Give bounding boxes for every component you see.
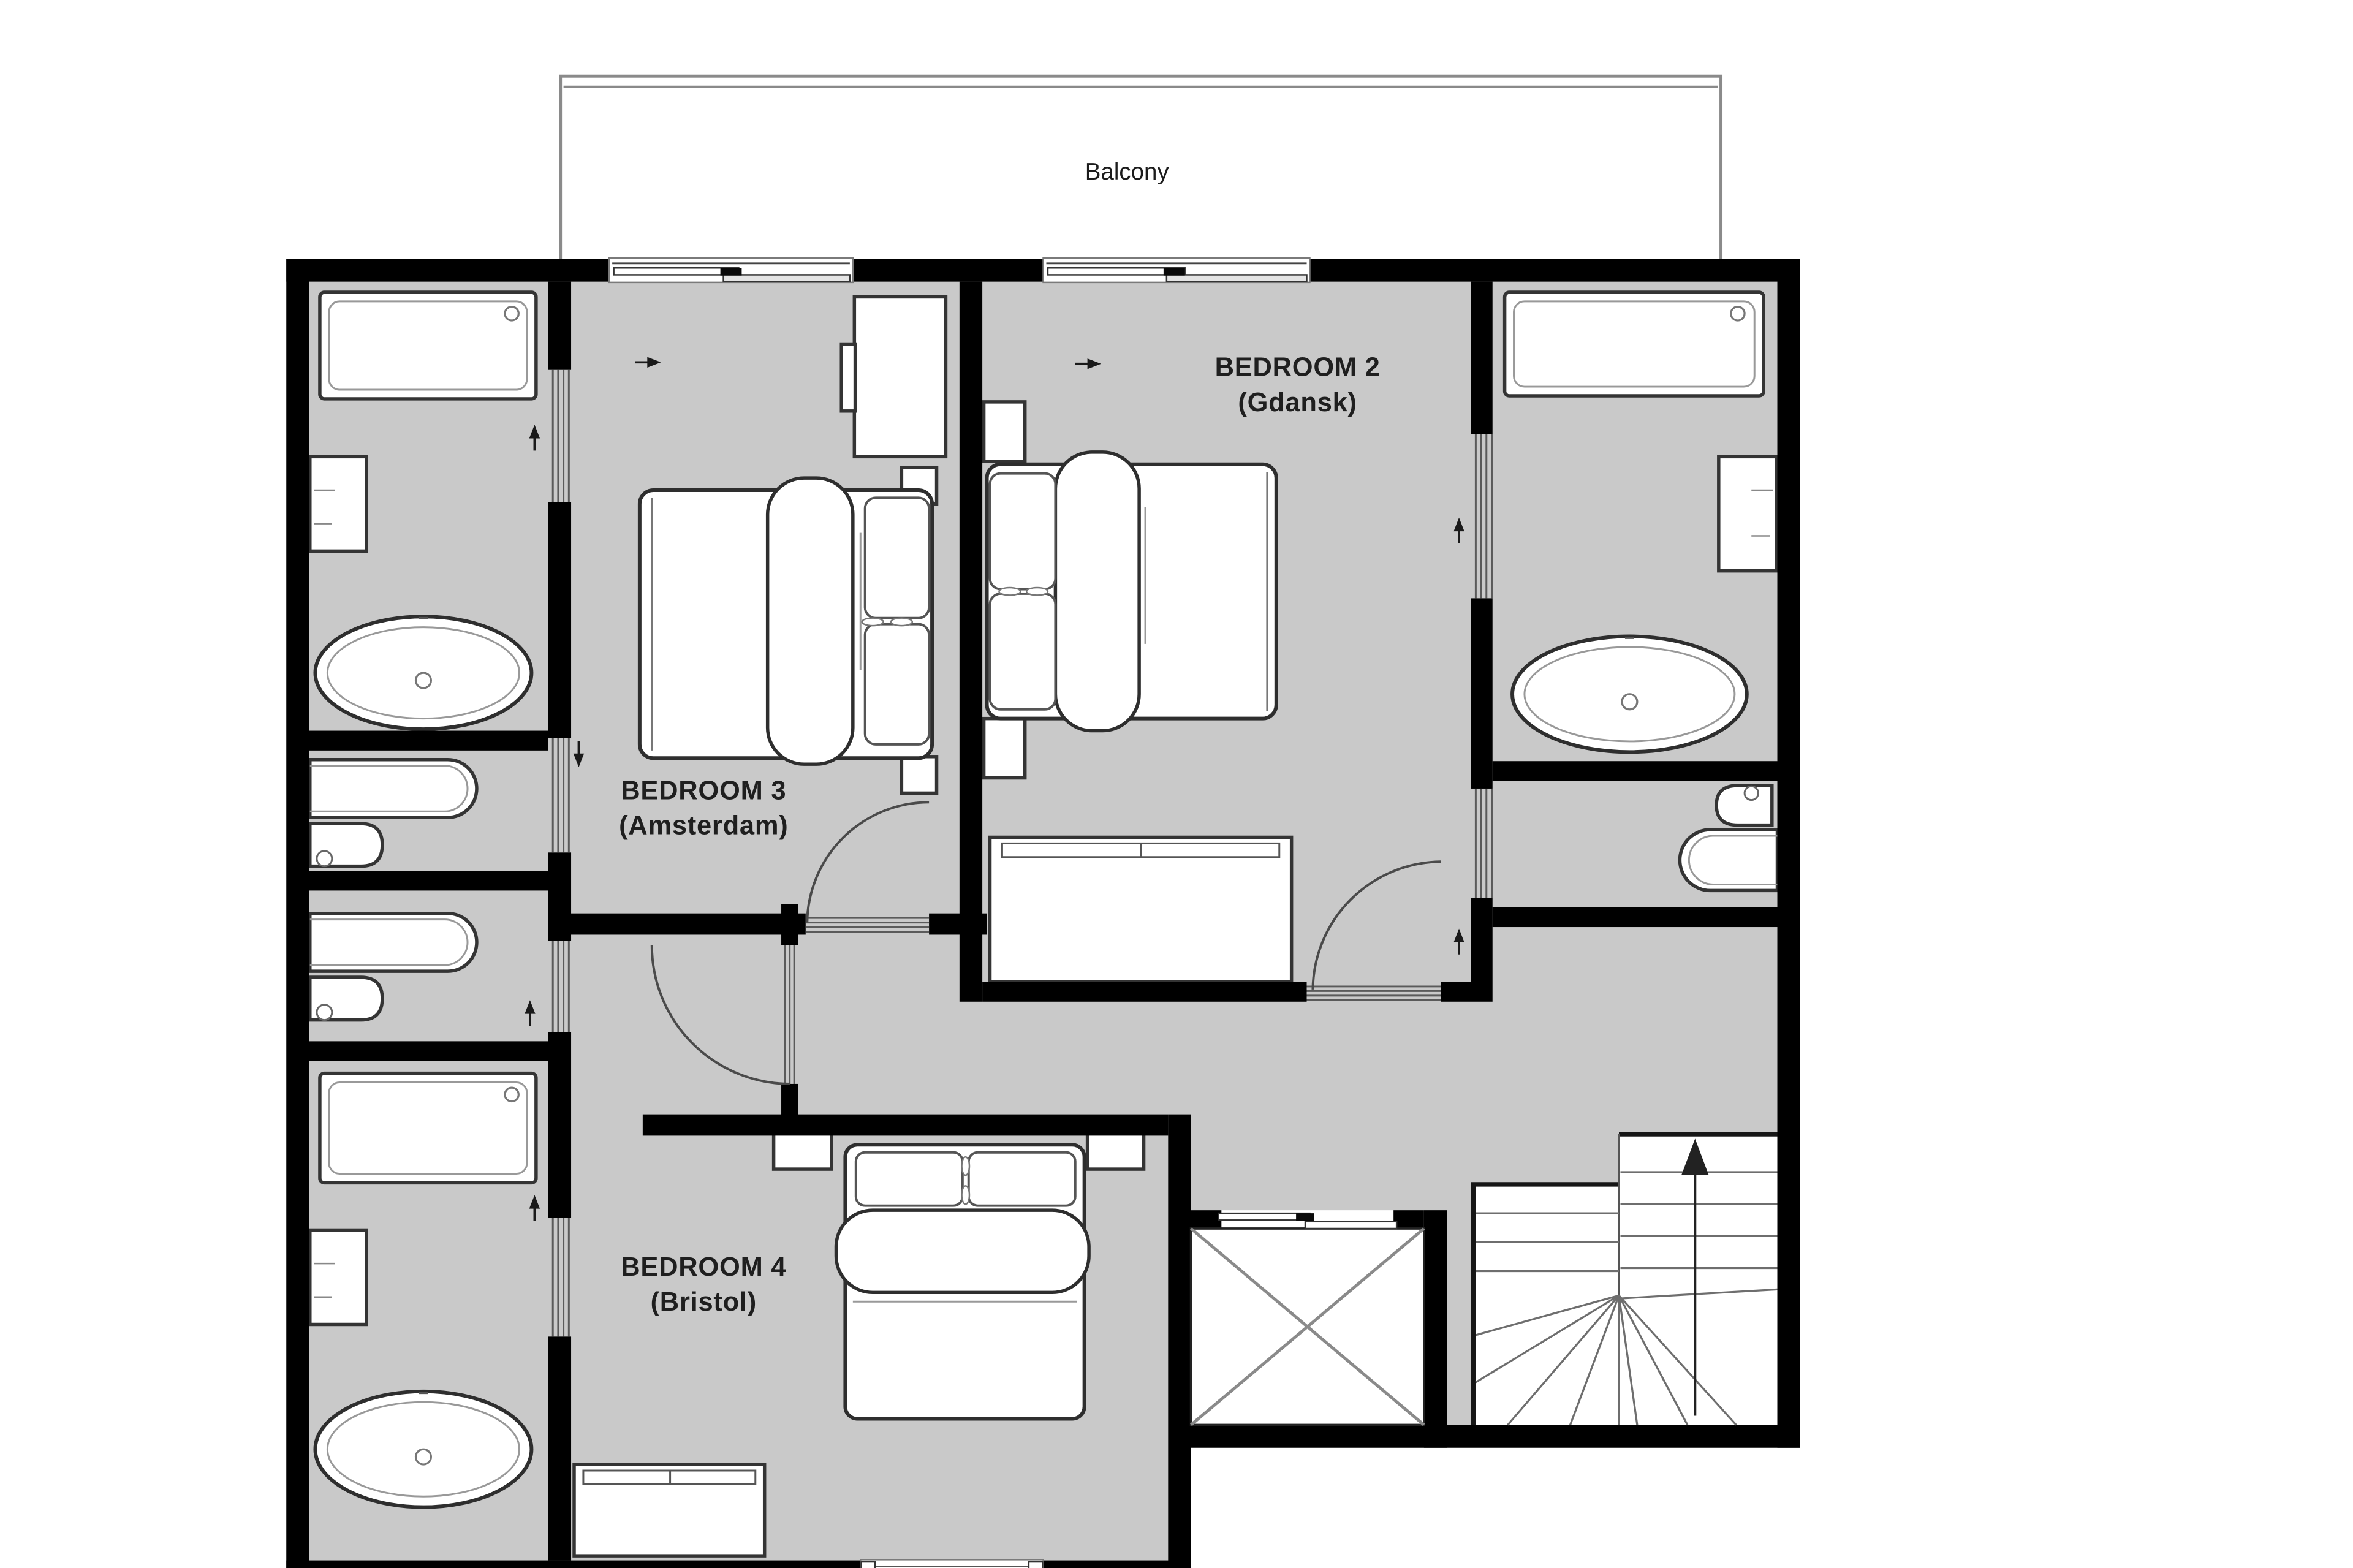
drain-icon <box>1622 694 1637 710</box>
pillow-tie <box>962 1157 969 1175</box>
shower-tray <box>320 1074 536 1183</box>
nightstand <box>984 719 1025 778</box>
wall-segment <box>1441 982 1471 1001</box>
pillow <box>990 474 1056 589</box>
pillow <box>865 498 929 618</box>
elevator <box>1191 1213 1424 1425</box>
balcony-sliding-door <box>1044 258 1310 282</box>
bedroom-2-label: BEDROOM 2 <box>1215 353 1381 382</box>
window-post <box>1029 1562 1042 1568</box>
wall-segment <box>309 1041 548 1061</box>
bedroom-2-alias: (Gdansk) <box>1238 388 1357 417</box>
vanity-unit <box>310 1230 366 1324</box>
wall-segment <box>1471 282 1493 434</box>
toilet-flush-icon <box>317 851 332 866</box>
wardrobe <box>854 297 945 456</box>
wall-segment <box>982 982 1306 1001</box>
duvet-roll <box>836 1210 1089 1292</box>
bedroom-4-alias: (Bristol) <box>651 1287 757 1317</box>
wall-segment <box>1191 1425 1800 1447</box>
pillow <box>865 624 929 744</box>
wall-segment <box>1424 1210 1447 1448</box>
exterior-cutout <box>1191 1448 1800 1568</box>
wall-segment <box>309 871 548 890</box>
wall-segment <box>853 259 1044 281</box>
wall-segment <box>781 904 798 945</box>
wall-segment <box>1168 1115 1191 1568</box>
stair-floor-left <box>1476 1184 1619 1425</box>
wall-segment <box>1778 259 1800 1447</box>
bedroom-3-alias: (Amsterdam) <box>619 811 788 840</box>
pillow <box>990 594 1056 710</box>
wall-segment <box>309 731 548 751</box>
pillow-tie <box>999 588 1020 595</box>
wall-segment <box>548 282 571 370</box>
pillow-tie <box>1026 588 1048 595</box>
dresser <box>990 837 1292 982</box>
wall-segment <box>1393 1210 1424 1229</box>
wash-basin <box>310 760 477 817</box>
vanity-unit <box>1719 456 1776 570</box>
wall-segment <box>286 259 309 1568</box>
wall-segment <box>548 502 571 738</box>
window-bedroom-4 <box>860 1559 1043 1568</box>
wall-segment <box>1493 907 1778 927</box>
balcony: Balcony <box>561 76 1721 260</box>
drain-icon <box>1731 307 1745 320</box>
shower-tray <box>1505 292 1764 396</box>
wall-segment <box>960 282 982 1002</box>
wash-basin <box>1680 830 1777 890</box>
duvet-roll <box>768 478 853 764</box>
pillow <box>856 1153 963 1206</box>
bedroom-3-label: BEDROOM 3 <box>621 776 786 805</box>
wall-segment <box>548 914 806 935</box>
wall-segment <box>286 259 609 281</box>
floor-plan: Balcony <box>0 0 2353 1568</box>
wall-segment <box>548 1032 571 1218</box>
bedroom-4-label: BEDROOM 4 <box>621 1252 786 1282</box>
balcony-label: Balcony <box>1085 159 1170 185</box>
elevator-door-panel <box>1305 1222 1396 1229</box>
drain-icon <box>416 673 431 688</box>
pillow-tie <box>862 618 884 626</box>
elevator-door-overlap <box>1296 1213 1314 1221</box>
wall-segment <box>1493 761 1778 781</box>
wall-segment <box>1191 1210 1222 1229</box>
wall-segment <box>1471 598 1493 789</box>
window-post <box>862 1562 875 1568</box>
wash-basin <box>310 914 477 971</box>
drain-icon <box>505 307 518 320</box>
wall-segment <box>548 1336 571 1560</box>
drain-icon <box>505 1088 518 1101</box>
wardrobe-door <box>841 344 855 411</box>
nightstand <box>984 402 1025 461</box>
wall-segment <box>643 1115 1168 1136</box>
toilet-flush-icon <box>1745 786 1758 800</box>
wall-segment <box>1309 259 1800 281</box>
shower-tray <box>320 292 536 399</box>
duvet-roll <box>1055 452 1139 731</box>
pillow <box>969 1153 1075 1206</box>
vanity-unit <box>310 456 366 551</box>
nightstand <box>901 757 936 793</box>
drain-icon <box>416 1449 431 1464</box>
pillow-tie <box>962 1186 969 1204</box>
wall-segment <box>1471 898 1493 1002</box>
balcony-sliding-door <box>609 258 853 282</box>
bedroom-2-furniture <box>984 402 1292 982</box>
toilet-flush-icon <box>317 1005 332 1020</box>
pillow-tie <box>891 618 912 626</box>
wall-segment <box>286 1561 860 1568</box>
